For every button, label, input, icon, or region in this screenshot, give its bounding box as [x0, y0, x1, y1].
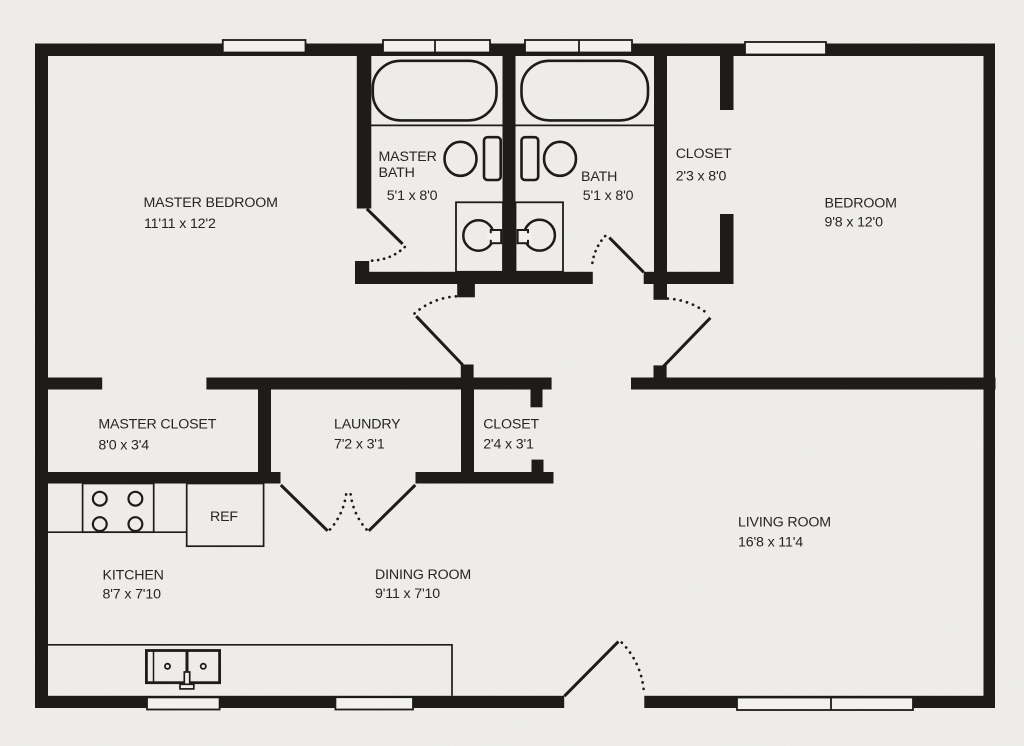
svg-text:LAUNDRY: LAUNDRY — [334, 416, 401, 432]
svg-text:DINING ROOM: DINING ROOM — [375, 567, 471, 583]
svg-text:KITCHEN: KITCHEN — [103, 568, 164, 584]
svg-text:MASTER CLOSET: MASTER CLOSET — [98, 416, 216, 432]
svg-text:CLOSET: CLOSET — [483, 416, 539, 432]
svg-text:8'7 x 7'10: 8'7 x 7'10 — [103, 587, 162, 603]
svg-text:REF: REF — [210, 509, 238, 525]
svg-text:11'11 x 12'2: 11'11 x 12'2 — [144, 216, 216, 232]
svg-text:16'8 x 11'4: 16'8 x 11'4 — [738, 535, 803, 551]
svg-text:MASTER: MASTER — [379, 149, 437, 165]
svg-text:BEDROOM: BEDROOM — [825, 195, 897, 211]
svg-text:9'11 x 7'10: 9'11 x 7'10 — [375, 586, 440, 602]
svg-text:LIVING ROOM: LIVING ROOM — [738, 514, 831, 530]
svg-text:8'0 x 3'4: 8'0 x 3'4 — [98, 437, 149, 453]
svg-text:2'4 x 3'1: 2'4 x 3'1 — [483, 436, 534, 452]
svg-text:BATH: BATH — [581, 169, 617, 185]
svg-text:CLOSET: CLOSET — [676, 146, 732, 162]
svg-text:BATH: BATH — [379, 165, 415, 181]
svg-text:MASTER BEDROOM: MASTER BEDROOM — [144, 195, 278, 211]
svg-text:9'8 x 12'0: 9'8 x 12'0 — [825, 215, 884, 231]
svg-text:7'2 x 3'1: 7'2 x 3'1 — [334, 436, 385, 452]
svg-text:2'3 x 8'0: 2'3 x 8'0 — [676, 168, 727, 184]
svg-text:5'1 x 8'0: 5'1 x 8'0 — [583, 188, 634, 204]
svg-text:5'1 x 8'0: 5'1 x 8'0 — [387, 188, 438, 204]
